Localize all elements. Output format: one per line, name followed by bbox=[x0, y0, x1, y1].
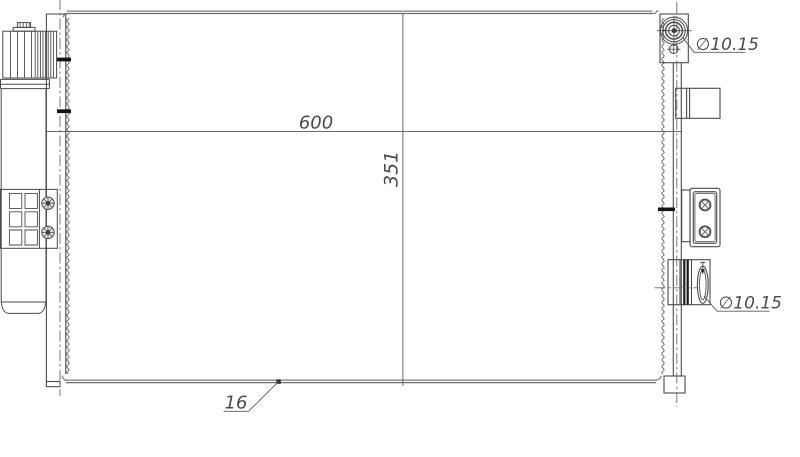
fin-strip-right bbox=[659, 18, 667, 374]
drier-neck bbox=[1, 79, 50, 88]
dim-core-height: 351 bbox=[381, 13, 403, 386]
dim-core-width-value: 600 bbox=[299, 113, 333, 134]
mounting-tab-upper-right bbox=[676, 88, 720, 118]
dim-core-depth: 16 bbox=[224, 379, 281, 413]
inlet-fitting-screw-hole bbox=[667, 44, 681, 54]
dim-core-width: 600 bbox=[46, 113, 681, 134]
outlet-diameter-value: ∅10.15 bbox=[719, 294, 782, 314]
dim-core-height-value: 351 bbox=[381, 151, 403, 187]
label-outlet-diameter: ∅10.15 bbox=[704, 294, 782, 314]
dim-core-depth-value: 16 bbox=[225, 393, 248, 414]
label-inlet-diameter: ∅10.15 bbox=[683, 35, 759, 55]
condenser-engineering-drawing: 600 351 16 ∅10.15 ∅10.15 bbox=[0, 0, 800, 457]
technical-drawing-canvas: 600 351 16 ∅10.15 ∅10.15 bbox=[0, 0, 800, 457]
mounting-bracket-mid-right bbox=[682, 188, 720, 246]
bracket-screw bbox=[42, 197, 54, 210]
baffle-mark bbox=[57, 58, 71, 62]
drier-mounting-bracket bbox=[1, 189, 58, 248]
core-top-plate bbox=[63, 11, 658, 17]
fin-strip-left bbox=[64, 18, 72, 374]
inlet-diameter-value: ∅10.15 bbox=[696, 35, 759, 55]
core-bottom-plate bbox=[62, 375, 661, 382]
bracket-bolt bbox=[699, 199, 711, 211]
bracket-bolt bbox=[699, 226, 711, 238]
drier-top-cap bbox=[13, 23, 35, 32]
baffle-mark bbox=[658, 208, 675, 212]
bracket-screw bbox=[42, 226, 54, 239]
receiver-drier bbox=[1, 23, 58, 314]
baffle-mark bbox=[57, 109, 71, 113]
drier-ribbed-body bbox=[3, 31, 57, 78]
